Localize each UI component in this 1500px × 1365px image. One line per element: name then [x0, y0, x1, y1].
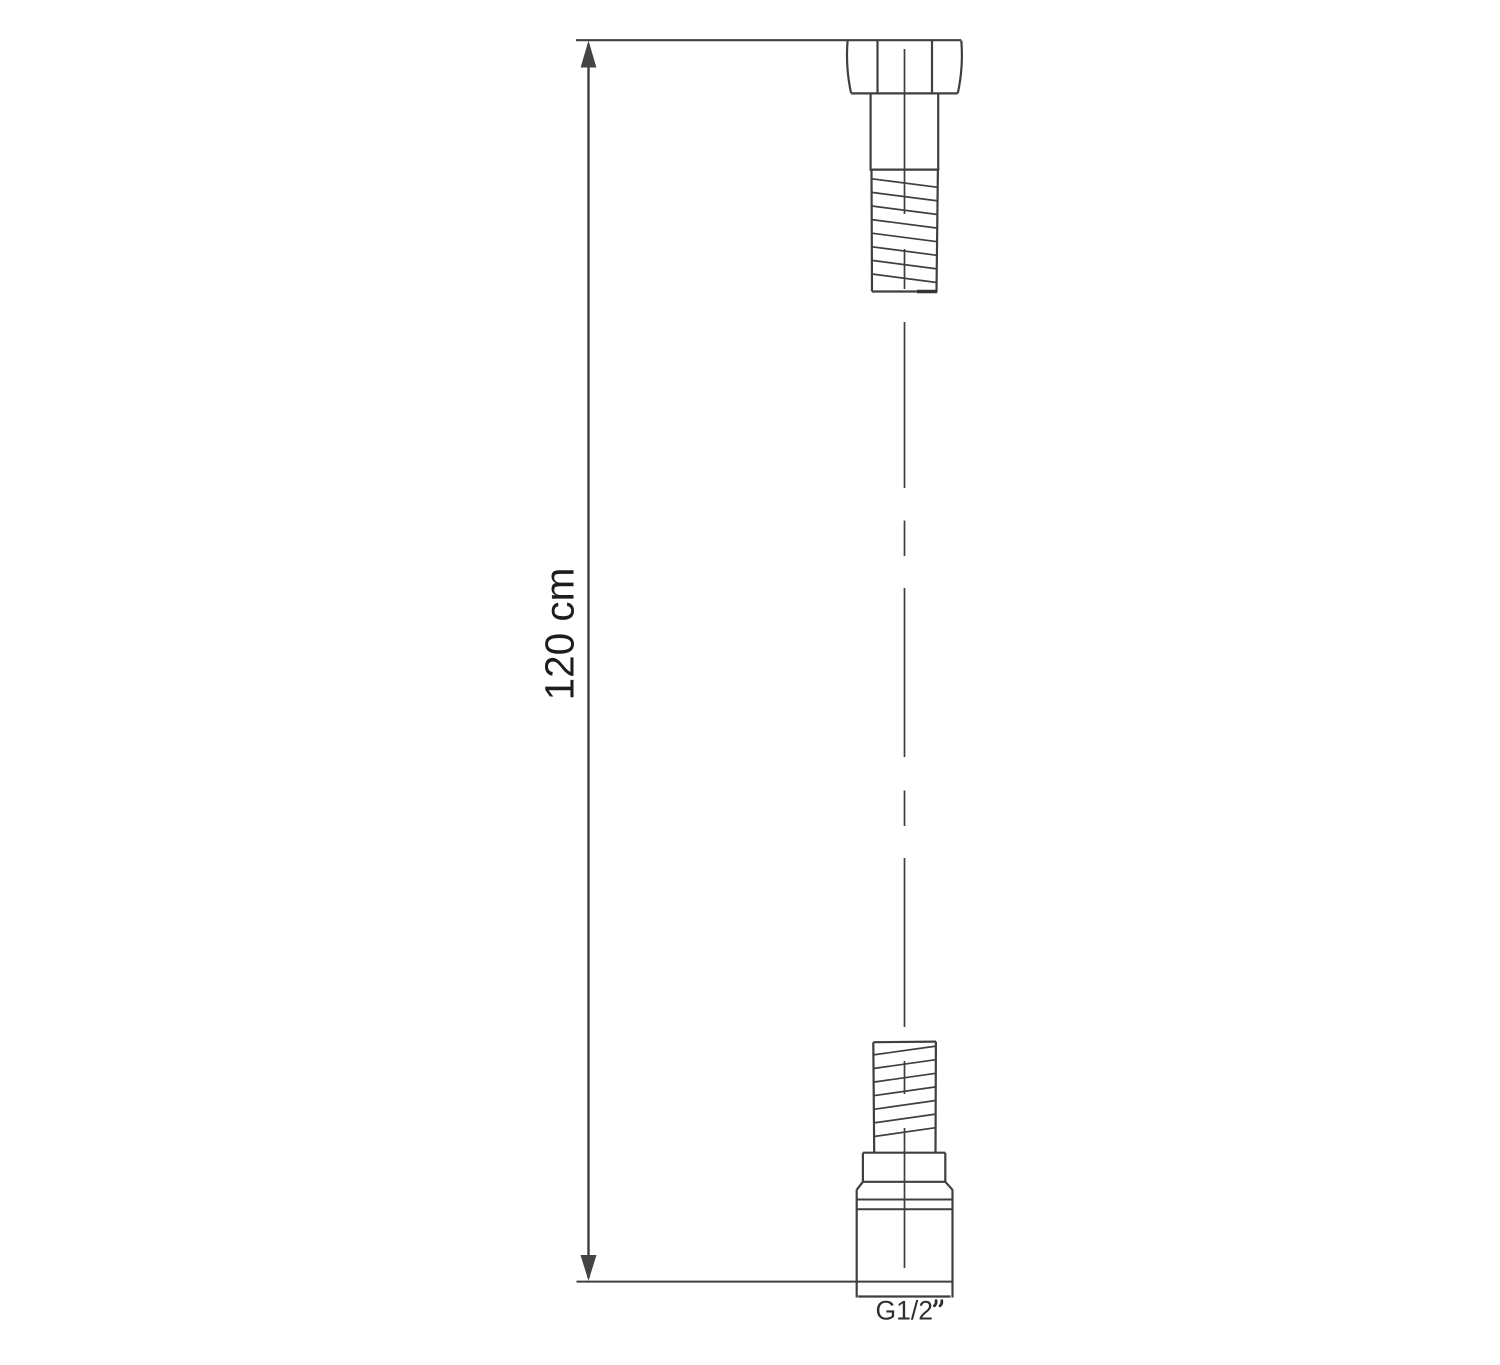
- svg-text:120 cm: 120 cm: [537, 568, 583, 701]
- svg-text:G1/2: G1/2: [876, 1296, 933, 1326]
